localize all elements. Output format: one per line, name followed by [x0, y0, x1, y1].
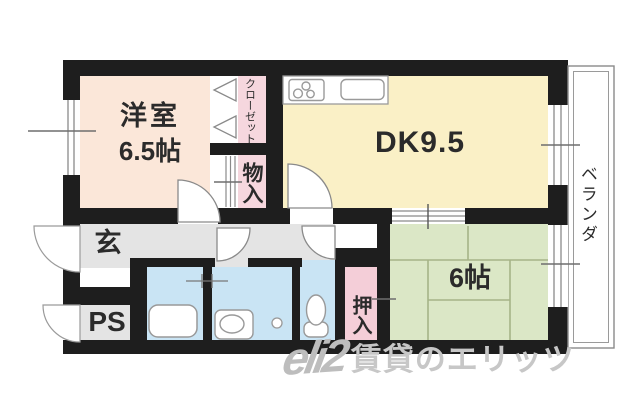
wall-right [548, 60, 568, 352]
pipe-space-label: PS [82, 307, 132, 336]
wall-corridor-top-3 [333, 208, 392, 224]
watermark-logo: eli2 [279, 332, 349, 382]
entrance-label: 玄 [88, 229, 128, 257]
wall-entrance-bottom [80, 287, 130, 305]
floorplan: 洋室 6.5帖 DK9.5 6帖 クローゼット 物入 押入 玄 PS ベランダ … [0, 0, 640, 416]
wall-top [63, 60, 568, 76]
futon-closet-label: 押入 [349, 290, 370, 340]
western-room-size-label: 6.5帖 [80, 138, 220, 165]
japanese-room-label: 6帖 [425, 264, 515, 292]
wall-entrance-right [130, 258, 147, 342]
storage-label: 物入 [240, 157, 262, 209]
wall-wash-toilet [292, 263, 300, 340]
veranda-label: ベランダ [578, 142, 596, 267]
washroom-area [212, 267, 292, 340]
bathroom-area [147, 267, 203, 340]
wall-corridor-bottom-1 [140, 258, 215, 267]
watermark: eli2 賃貸のエリッツ [284, 334, 575, 380]
dk-label: DK9.5 [345, 127, 495, 159]
wall-bath-wash [203, 267, 212, 340]
wall-corridor-top-1 [63, 208, 178, 224]
wall-closet-bottom [210, 143, 283, 155]
entrance-step [80, 268, 130, 287]
closet-label: クローゼット [243, 78, 255, 144]
watermark-text: 賃貸のエリッツ [351, 344, 575, 375]
wall-corridor-top-2 [218, 208, 290, 224]
wall-japanese-room-left [377, 224, 390, 340]
toilet-area [300, 260, 335, 340]
wall-corridor-top-4 [465, 208, 548, 224]
western-room-label: 洋室 [85, 102, 215, 130]
